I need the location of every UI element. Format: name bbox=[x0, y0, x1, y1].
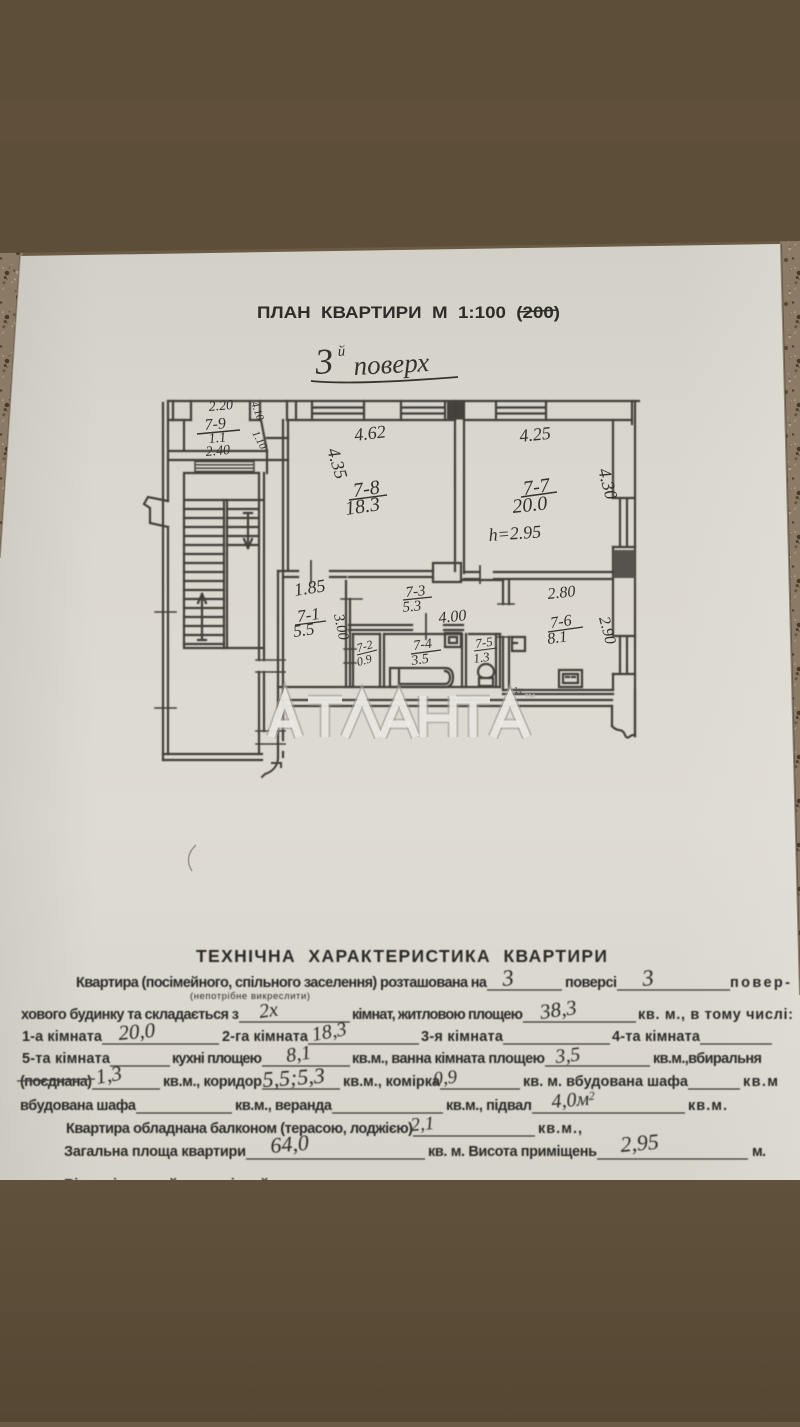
svg-text:1,3: 1,3 bbox=[94, 1061, 124, 1089]
svg-text:3: 3 bbox=[500, 965, 515, 991]
svg-text:Квартира (посімейного, спільно: Квартира (посімейного, спільного заселен… bbox=[76, 975, 488, 991]
svg-text:кв.м., підвал: кв.м., підвал bbox=[446, 1098, 532, 1114]
svg-text:3.5: 3.5 bbox=[409, 652, 429, 669]
svg-text:4-та кімната: 4-та кімната bbox=[612, 1029, 701, 1045]
svg-text:h=2.95: h=2.95 bbox=[488, 521, 542, 545]
svg-text:кімнат, житловою площею: кімнат, житловою площею bbox=[352, 1007, 523, 1023]
svg-text:кв. м., в тому числі:: кв. м., в тому числі: bbox=[638, 1007, 793, 1023]
svg-text:кв.м.,вбиральня: кв.м.,вбиральня bbox=[653, 1051, 762, 1067]
svg-text:20.0: 20.0 bbox=[511, 492, 548, 518]
svg-text:2,95: 2,95 bbox=[619, 1129, 660, 1157]
svg-text:1v: 1v bbox=[514, 686, 522, 695]
svg-text:20,0: 20,0 bbox=[117, 1018, 156, 1045]
svg-text:0,9: 0,9 bbox=[432, 1067, 458, 1090]
svg-text:кв. м. Висота приміщень: кв. м. Висота приміщень bbox=[428, 1144, 597, 1160]
svg-text:кв.м.: кв.м. bbox=[688, 1098, 727, 1114]
svg-text:8.1: 8.1 bbox=[546, 628, 568, 648]
svg-text:(непотрібне викреслити): (непотрібне викреслити) bbox=[190, 991, 310, 1002]
svg-text:3: 3 bbox=[313, 341, 335, 382]
svg-text:5.3: 5.3 bbox=[402, 598, 422, 616]
svg-text:Квартира обладнана балконом (т: Квартира обладнана балконом (терасою, ло… bbox=[66, 1121, 413, 1137]
svg-text:кв.м: кв.м bbox=[743, 1074, 778, 1090]
svg-text:ТЕХНІЧНА ХАРАКТЕРИСТИКА КВАР: ТЕХНІЧНА ХАРАКТЕРИСТИКА КВАРТИРИ bbox=[196, 946, 607, 966]
svg-text:вбудована шафа: вбудована шафа bbox=[20, 1098, 137, 1114]
svg-text:поверх: поверх bbox=[353, 347, 430, 381]
svg-text:ПЛАН КВАРТИРИ М 1:100 (200: ПЛАН КВАРТИРИ М 1:100 (200) bbox=[257, 304, 560, 322]
svg-text:кв. м. вбудована шафа: кв. м. вбудована шафа bbox=[523, 1074, 689, 1090]
svg-text:2,1: 2,1 bbox=[410, 1113, 435, 1136]
svg-text:кв.м., веранда: кв.м., веранда bbox=[235, 1098, 333, 1114]
svg-text:5.5: 5.5 bbox=[292, 619, 316, 641]
svg-text:1-а кімната: 1-а кімната bbox=[22, 1029, 103, 1045]
svg-text:кв.м., ванна кімната площею: кв.м., ванна кімната площею bbox=[352, 1051, 545, 1067]
svg-text:4,0м: 4,0м bbox=[551, 1088, 591, 1113]
svg-text:2.80: 2.80 bbox=[547, 583, 577, 603]
svg-text:(поєднана): (поєднана) bbox=[20, 1074, 92, 1090]
svg-text:™: ™ bbox=[524, 691, 536, 705]
svg-text:м.: м. bbox=[752, 1144, 766, 1160]
svg-text:поверсі: поверсі bbox=[565, 975, 617, 991]
svg-text:4.62: 4.62 bbox=[353, 421, 387, 445]
svg-text:3-я кімната: 3-я кімната bbox=[421, 1029, 504, 1045]
svg-text:4.00: 4.00 bbox=[438, 607, 468, 627]
svg-text:3: 3 bbox=[640, 965, 655, 991]
svg-text:2.20: 2.20 bbox=[208, 398, 234, 415]
svg-text:кв.м., коридор: кв.м., коридор bbox=[163, 1074, 262, 1090]
svg-text:кухні площею: кухні площею bbox=[172, 1051, 262, 1067]
svg-text:4.25: 4.25 bbox=[518, 423, 551, 446]
svg-text:2: 2 bbox=[588, 1089, 595, 1103]
svg-text:2х: 2х bbox=[258, 999, 280, 1023]
svg-text:2.40: 2.40 bbox=[205, 443, 231, 460]
svg-text:кв.м., комірка: кв.м., комірка bbox=[343, 1074, 441, 1090]
svg-text:64,0: 64,0 bbox=[269, 1130, 310, 1158]
svg-text:1.3: 1.3 bbox=[472, 649, 491, 666]
svg-text:5,5;5,3: 5,5;5,3 bbox=[262, 1063, 326, 1092]
svg-text:Загальна площа квартири: Загальна площа квартири bbox=[64, 1144, 246, 1160]
svg-text:3,5: 3,5 bbox=[553, 1043, 581, 1068]
svg-text:кв.м.,: кв.м., bbox=[538, 1121, 582, 1137]
